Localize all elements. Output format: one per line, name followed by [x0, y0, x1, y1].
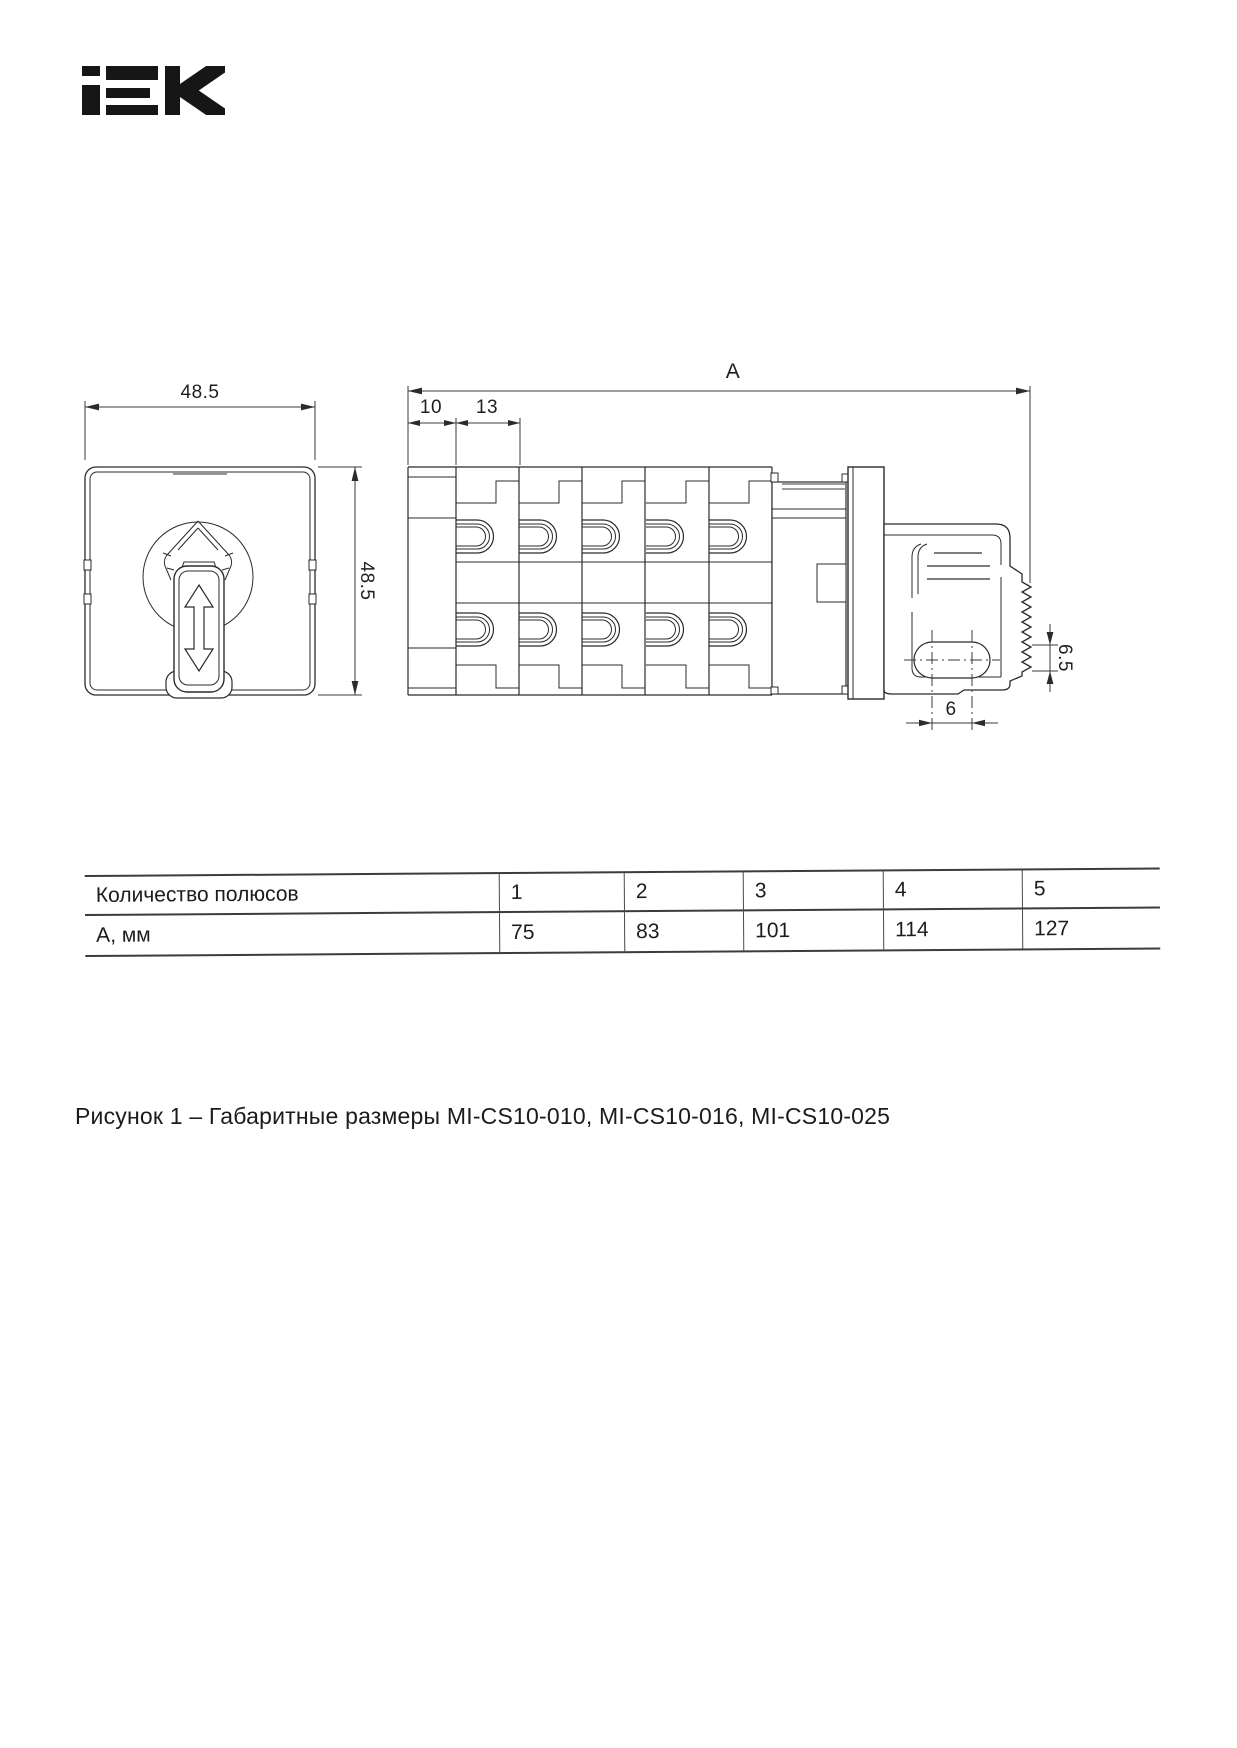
iek-logo	[82, 60, 229, 121]
front-view-drawing	[84, 401, 362, 698]
side-view-drawing	[408, 386, 1058, 730]
dim-side-module: 13	[476, 397, 498, 419]
dim-side-total: A	[726, 360, 741, 384]
table-cell: 114	[883, 909, 1022, 949]
table-cell: 3	[743, 871, 883, 909]
table-cell: 4	[883, 870, 1022, 908]
switch-modules	[456, 467, 772, 695]
dim-slot-pitch: 6	[945, 699, 956, 721]
knob-side	[884, 524, 1031, 730]
row-label: Количество полюсов	[85, 874, 499, 914]
dim-side-back: 10	[420, 397, 442, 419]
side-pitch-dimensions	[408, 418, 520, 465]
front-width-dimension	[85, 401, 315, 460]
table-cell: 101	[743, 910, 883, 950]
mounting-plate	[842, 467, 884, 699]
dim-slot-height: 6.5	[1053, 644, 1075, 672]
table-row-length: А, мм 75 83 101 114 127	[85, 908, 1160, 955]
table-cell: 83	[624, 911, 743, 951]
dim-front-width: 48.5	[181, 382, 220, 404]
table-cell: 75	[499, 912, 624, 952]
dim-front-height: 48.5	[355, 562, 377, 601]
document-page: 48.5 48.5 A 10 13 6.5 6 Количество полюс…	[0, 0, 1237, 1748]
row-label: А, мм	[85, 913, 499, 955]
dimensions-table: Количество полюсов 1 2 3 4 5 А, мм 75 83…	[85, 867, 1161, 957]
figure-caption: Рисунок 1 – Габаритные размеры MI-CS10-0…	[75, 1103, 890, 1130]
front-body-block	[771, 473, 846, 694]
table-cell: 2	[624, 872, 743, 910]
table-cell: 1	[499, 873, 624, 911]
table-cell: 127	[1022, 908, 1160, 948]
table-cell: 5	[1022, 869, 1160, 907]
